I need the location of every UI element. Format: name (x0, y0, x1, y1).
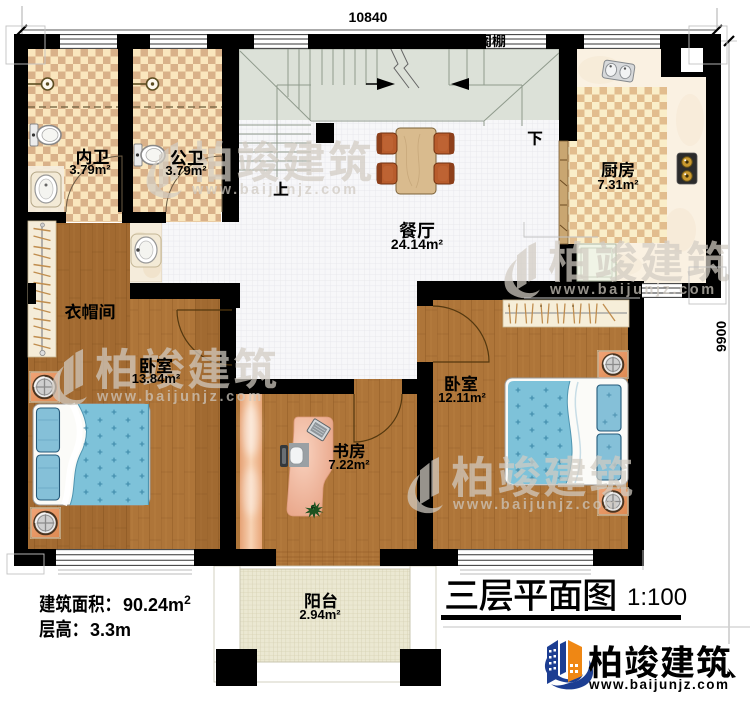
svg-text:www.baijunjz.com: www.baijunjz.com (549, 282, 717, 298)
svg-text:www.baijunjz.com: www.baijunjz.com (588, 677, 730, 692)
svg-text:2.94m²: 2.94m² (299, 607, 341, 622)
svg-text:www.baijunjz.com: www.baijunjz.com (191, 182, 359, 198)
svg-text:1:100: 1:100 (627, 584, 687, 611)
svg-text:9900: 9900 (713, 321, 729, 352)
svg-text:12.11m²: 12.11m² (438, 390, 486, 405)
svg-text:3.79m²: 3.79m² (69, 162, 111, 177)
svg-text:10840: 10840 (349, 9, 388, 25)
svg-text:24.14m²: 24.14m² (391, 236, 443, 252)
svg-text:90.24m2: 90.24m2 (123, 593, 191, 615)
svg-text:13.84m²: 13.84m² (132, 371, 181, 386)
svg-text:www.baijunjz.com: www.baijunjz.com (96, 389, 264, 405)
svg-text:www.baijunjz.com: www.baijunjz.com (452, 497, 620, 513)
svg-text:7.31m²: 7.31m² (597, 177, 639, 192)
svg-text:3.79m²: 3.79m² (165, 163, 207, 178)
svg-text:7.22m²: 7.22m² (328, 457, 370, 472)
svg-text:3.3m: 3.3m (90, 620, 131, 640)
